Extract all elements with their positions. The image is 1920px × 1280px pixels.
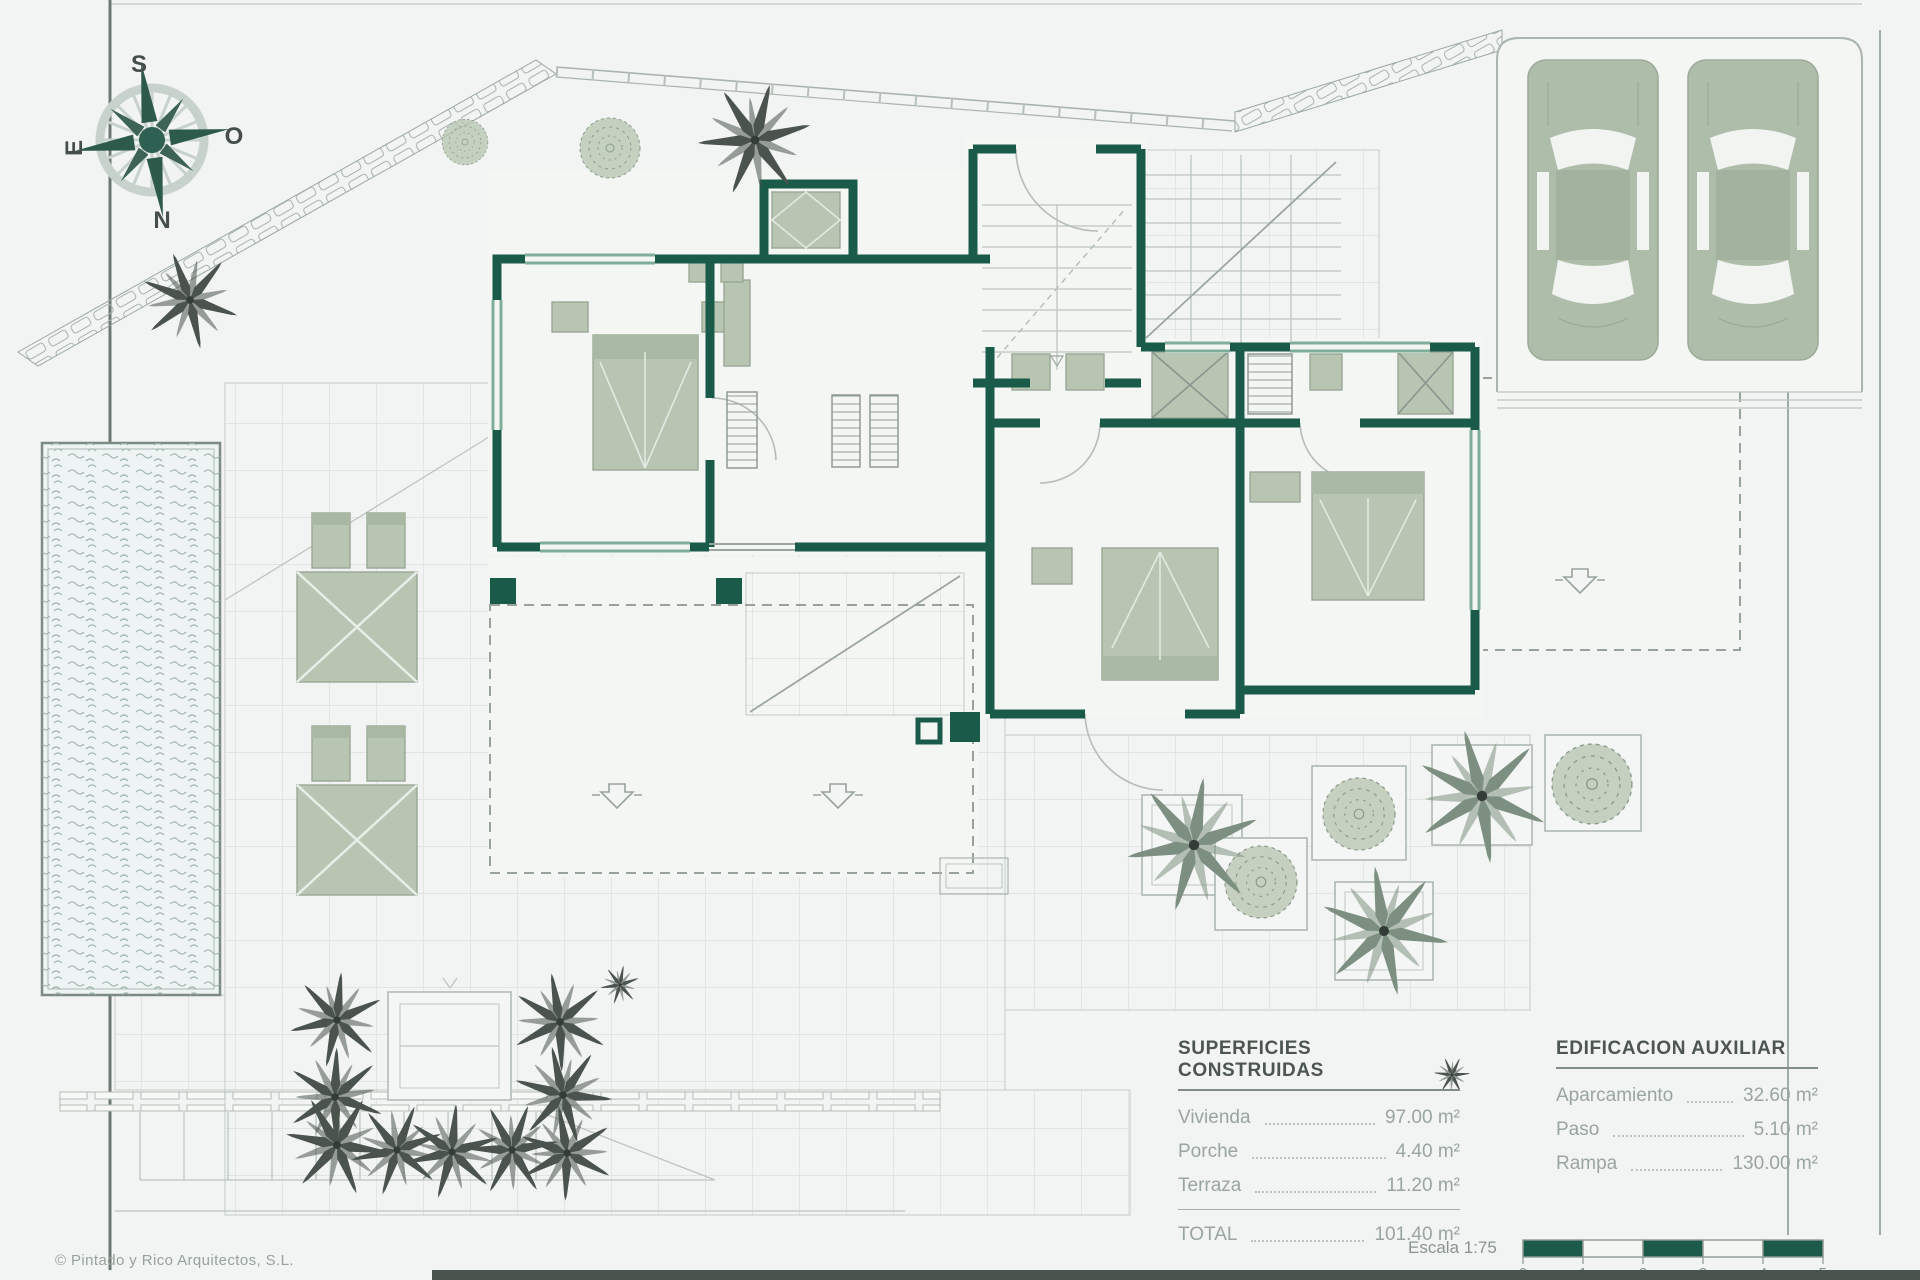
- dot-leader: [1631, 1169, 1722, 1171]
- table-row: Porche 4.40 m²: [1178, 1141, 1460, 1163]
- porch-terrace: [488, 557, 978, 877]
- scale-label: Escala 1:75: [1408, 1238, 1497, 1258]
- table-edificacion-auxiliar: EDIFICACION AUXILIAR Aparcamiento 32.60 …: [1556, 1038, 1818, 1187]
- compass-label-n: N: [153, 207, 170, 234]
- sheet-edge: [432, 1270, 1920, 1280]
- dot-leader: [1252, 1157, 1385, 1159]
- dot-leader: [1251, 1240, 1364, 1242]
- floor-plan-canvas: S O N E 0 1 2 3 4 5 m SUPERFICIES CONSTR…: [0, 0, 1920, 1280]
- table-row: Paso 5.10 m²: [1556, 1119, 1818, 1141]
- table-auxiliar-title: EDIFICACION AUXILIAR: [1556, 1038, 1818, 1060]
- compass-label-o: O: [225, 123, 244, 150]
- total-label: TOTAL: [1178, 1224, 1237, 1246]
- dot-leader: [1265, 1123, 1375, 1125]
- dot-leader: [1613, 1135, 1743, 1137]
- row-label: Terraza: [1178, 1175, 1241, 1197]
- table-rule: [1178, 1089, 1460, 1091]
- copyright-note: © Pintado y Rico Arquitectos, S.L.: [55, 1252, 294, 1269]
- table-superficies-title: SUPERFICIES CONSTRUIDAS: [1178, 1038, 1460, 1082]
- table-rule: [1178, 1209, 1460, 1210]
- table-row: Terraza 11.20 m²: [1178, 1175, 1460, 1197]
- parking-area: [1497, 38, 1862, 408]
- row-label: Aparcamiento: [1556, 1085, 1673, 1107]
- dot-leader: [1255, 1191, 1376, 1193]
- table-row: Aparcamiento 32.60 m²: [1556, 1085, 1818, 1107]
- compass-star: [64, 52, 240, 228]
- east-terrace: [1482, 378, 1740, 650]
- row-value: 5.10 m²: [1754, 1119, 1818, 1141]
- table-superficies-construidas: SUPERFICIES CONSTRUIDAS Vivienda 97.00 m…: [1178, 1038, 1460, 1258]
- row-value: 11.20 m²: [1386, 1175, 1460, 1197]
- car-right: [1688, 60, 1818, 360]
- row-value: 130.00 m²: [1732, 1153, 1818, 1175]
- row-value: 4.40 m²: [1396, 1141, 1460, 1163]
- compass-label-e: E: [61, 140, 88, 156]
- row-label: Porche: [1178, 1141, 1238, 1163]
- dot-leader: [1687, 1101, 1733, 1103]
- row-label: Vivienda: [1178, 1107, 1251, 1129]
- row-label: Rampa: [1556, 1153, 1617, 1175]
- row-label: Paso: [1556, 1119, 1599, 1141]
- table-rule: [1556, 1067, 1818, 1069]
- car-left: [1528, 60, 1658, 360]
- table-row: Vivienda 97.00 m²: [1178, 1107, 1460, 1129]
- row-value: 97.00 m²: [1385, 1107, 1460, 1129]
- row-value: 32.60 m²: [1743, 1085, 1818, 1107]
- swimming-pool: [42, 443, 220, 995]
- compass-label-s: S: [131, 51, 147, 78]
- compass-rose: S O N E: [61, 51, 243, 234]
- table-row: Rampa 130.00 m²: [1556, 1153, 1818, 1175]
